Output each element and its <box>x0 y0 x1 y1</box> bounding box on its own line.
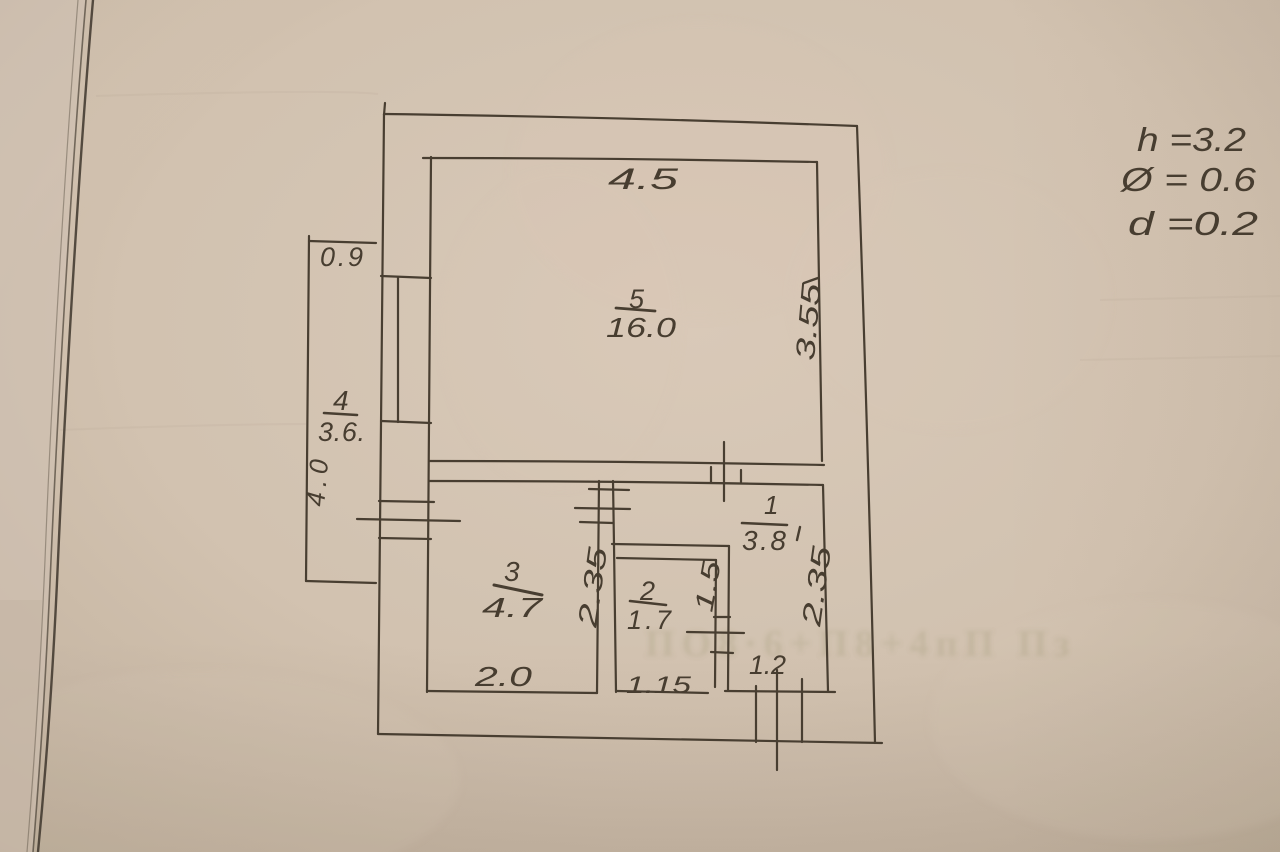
svg-text:4.5: 4.5 <box>608 163 679 196</box>
svg-text:1.7: 1.7 <box>627 605 672 635</box>
svg-text:5: 5 <box>629 284 645 314</box>
svg-text:h =3.2: h =3.2 <box>1137 121 1246 158</box>
svg-text:4.0: 4.0 <box>300 458 334 508</box>
svg-text:16.0: 16.0 <box>606 312 677 343</box>
svg-text:1: 1 <box>764 490 778 520</box>
svg-text:2.0: 2.0 <box>474 661 533 692</box>
svg-text:1.15: 1.15 <box>626 672 692 699</box>
svg-text:ПО8·6+П8+4пП Пз: ПО8·6+П8+4пП Пз <box>645 623 1076 665</box>
svg-text:3: 3 <box>504 556 520 587</box>
svg-text:3.6.: 3.6. <box>318 417 365 447</box>
svg-text:4: 4 <box>333 385 349 416</box>
svg-text:d =0.2: d =0.2 <box>1128 205 1258 242</box>
svg-text:4.7: 4.7 <box>482 592 544 623</box>
svg-text:Ø = 0.6: Ø = 0.6 <box>1120 161 1257 198</box>
svg-text:1.2: 1.2 <box>749 650 786 680</box>
svg-text:0.9: 0.9 <box>320 242 363 272</box>
svg-text:2: 2 <box>639 576 655 606</box>
svg-text:3.8: 3.8 <box>742 525 786 556</box>
